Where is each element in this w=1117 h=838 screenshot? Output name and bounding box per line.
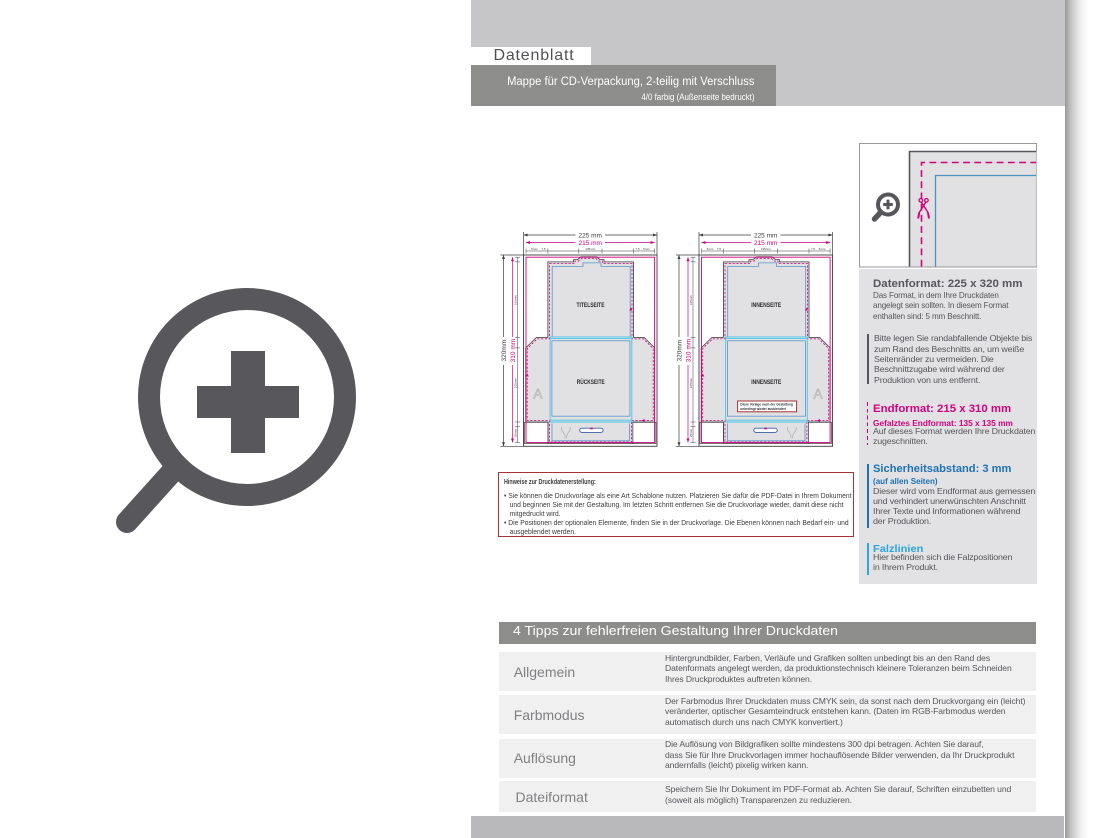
svg-text:RÜCKSEITE: RÜCKSEITE — [577, 379, 605, 386]
svg-text:INNENSEITE: INNENSEITE — [751, 379, 781, 386]
svg-text:A: A — [813, 387, 822, 402]
svg-text:A: A — [533, 387, 542, 402]
svg-text:TITELSEITE: TITELSEITE — [577, 302, 605, 309]
svg-text:INNENSEITE: INNENSEITE — [751, 302, 781, 309]
svg-text:unbedingt wieder ausblenden!: unbedingt wieder ausblenden! — [740, 407, 786, 411]
